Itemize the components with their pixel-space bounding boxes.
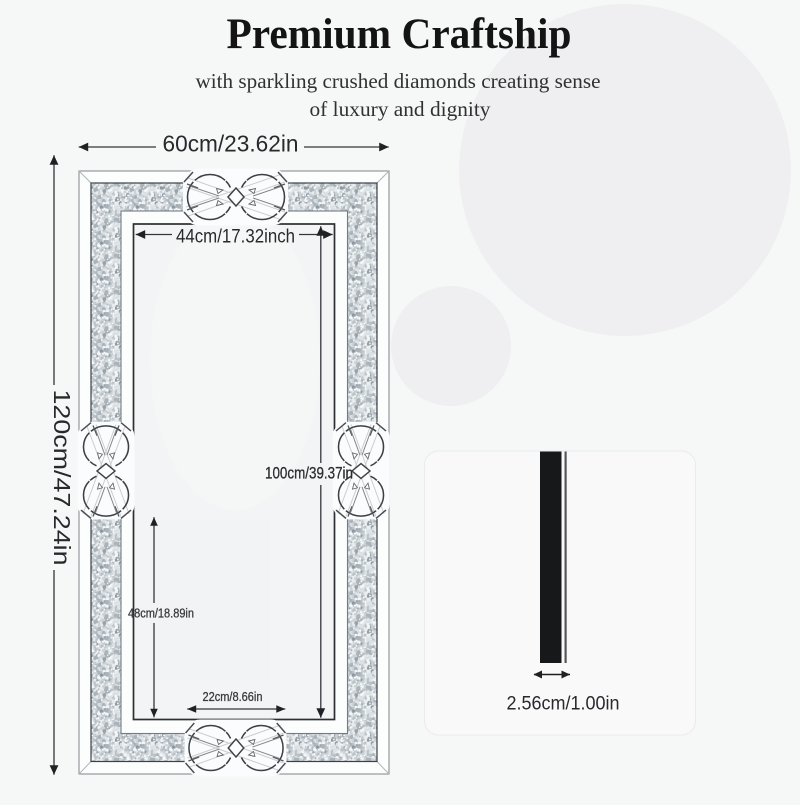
svg-text:44cm/17.32inch: 44cm/17.32inch xyxy=(176,226,295,248)
svg-text:120cm/47.24in: 120cm/47.24in xyxy=(49,390,75,566)
svg-text:60cm/23.62in: 60cm/23.62in xyxy=(163,131,299,157)
svg-text:22cm/8.66in: 22cm/8.66in xyxy=(203,690,263,704)
svg-text:48cm/18.89in: 48cm/18.89in xyxy=(128,607,194,621)
svg-text:100cm/39.37in: 100cm/39.37in xyxy=(265,465,353,483)
svg-text:with sparkling crushed diamond: with sparkling crushed diamonds creating… xyxy=(196,69,601,93)
svg-text:of luxury and dignity: of luxury and dignity xyxy=(310,97,491,121)
svg-text:Premium Craftship: Premium Craftship xyxy=(227,11,572,58)
svg-text:2.56cm/1.00in: 2.56cm/1.00in xyxy=(507,693,620,715)
